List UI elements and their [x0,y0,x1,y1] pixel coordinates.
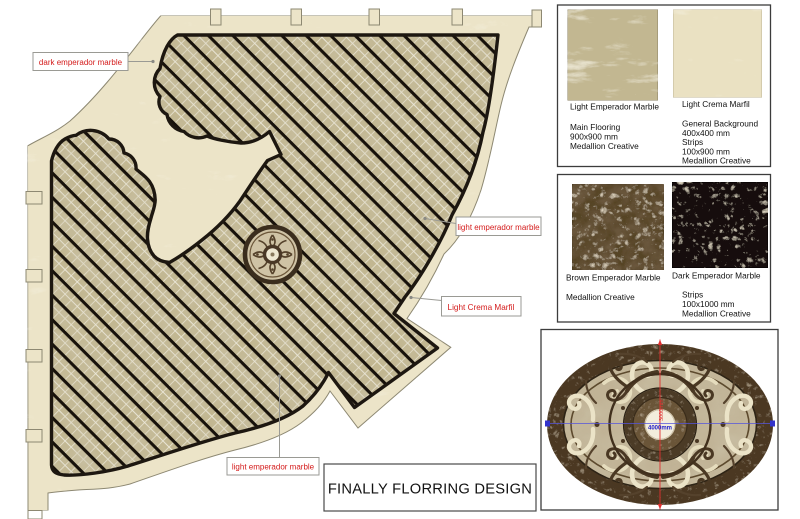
svg-text:Light Emperador Marble: Light Emperador Marble [570,102,659,112]
svg-text:Light Crema Marfil: Light Crema Marfil [682,99,750,109]
svg-text:Dark Emperador Marble: Dark Emperador Marble [672,271,761,281]
svg-text:3000mm: 3000mm [659,399,665,421]
svg-text:100x1000 mm: 100x1000 mm [682,299,735,309]
svg-text:dark emperador marble: dark emperador marble [39,58,123,67]
svg-text:4000mm: 4000mm [648,426,672,432]
svg-text:Strips: Strips [682,290,703,300]
svg-text:Medallion Creative: Medallion Creative [566,292,635,302]
svg-text:Medallion Creative: Medallion Creative [682,156,751,166]
svg-text:light emperador marble: light emperador marble [457,223,540,232]
svg-text:Main Flooring: Main Flooring [570,122,621,132]
svg-text:900x900 mm: 900x900 mm [570,132,618,142]
svg-text:FINALLY FLORRING DESIGN: FINALLY FLORRING DESIGN [328,482,532,498]
svg-text:light emperador marble: light emperador marble [232,463,315,472]
svg-text:Medallion Creative: Medallion Creative [570,141,639,151]
svg-text:Light Crema Marfil: Light Crema Marfil [448,303,515,312]
svg-text:Brown Emperador Marble: Brown Emperador Marble [566,273,661,283]
svg-text:Medallion Creative: Medallion Creative [682,309,751,319]
